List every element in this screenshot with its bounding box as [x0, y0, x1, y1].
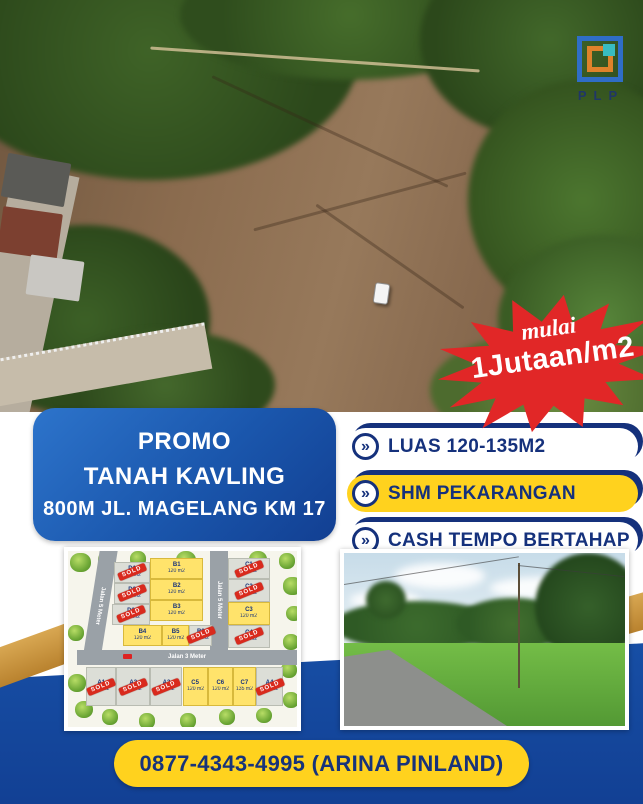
- red-roof-building: [0, 206, 63, 260]
- plot-code: C7: [234, 680, 255, 686]
- plot-code: C3: [229, 607, 268, 613]
- plot-code: B4: [124, 629, 161, 635]
- white-roof-building: [25, 254, 84, 301]
- tree-icon: [219, 709, 235, 725]
- plot-area: 120 m2: [165, 635, 187, 641]
- siteplan: Jalan 5 MeterJalan 5 MeterJalan 3 MeterB…: [68, 551, 297, 727]
- plot-code: B3: [151, 604, 202, 610]
- plot-area: 135 m2: [235, 687, 253, 693]
- plot: D1120 m2SOLD: [114, 562, 151, 583]
- palm-tree: [366, 581, 405, 619]
- plot: B5120 m2: [162, 625, 189, 646]
- contact-label: 0877-4343-4995 (ARINA PINLAND): [140, 751, 504, 776]
- promo-title: PROMO: [33, 428, 336, 456]
- tree-icon: [283, 634, 297, 650]
- plot: C6120 m2: [208, 667, 233, 706]
- tree-icon: [70, 553, 91, 572]
- plot: A2120 m2SOLD: [116, 667, 150, 706]
- tree-icon: [68, 625, 84, 641]
- tree-icon: [139, 713, 155, 727]
- dirt-track: [253, 172, 466, 232]
- flyer: PLP mulai 1Jutaan/m2 PROMO TANAH KAVLING…: [0, 0, 643, 804]
- promo-card: PROMO TANAH KAVLING 800M JL. MAGELANG KM…: [33, 408, 336, 541]
- developer-logo-icon: [577, 36, 623, 82]
- road-label: Jalan 5 Meter: [94, 587, 106, 625]
- contact-pill: 0877-4343-4995 (ARINA PINLAND): [114, 740, 530, 787]
- tree-icon: [68, 674, 86, 692]
- tree-icon: [256, 708, 272, 724]
- plot: C1120 m2SOLD: [228, 558, 269, 579]
- plot-area: 120 m2: [185, 687, 205, 693]
- white-van: [373, 282, 391, 305]
- feature-label: SHM PEKARANGAN: [388, 483, 576, 505]
- road-label: Jalan 5 Meter: [216, 581, 222, 619]
- plot-area: 120 m2: [210, 687, 230, 693]
- plot-code: B2: [151, 583, 202, 589]
- tree-icon: [180, 713, 196, 727]
- feature-pill: »SHM PEKARANGAN: [347, 475, 638, 512]
- feature-list: »LUAS 120-135M2»SHM PEKARANGAN»CASH TEMP…: [347, 428, 638, 569]
- plot: B1120 m2: [150, 558, 203, 579]
- tree-icon: [102, 709, 118, 725]
- plot: C5120 m2: [183, 667, 208, 706]
- plot: B3120 m2: [150, 600, 203, 621]
- plot: B4120 m2: [123, 625, 162, 646]
- plot-area: 120 m2: [127, 635, 158, 641]
- logo-core-square: [603, 44, 615, 56]
- chevron-icon: »: [352, 433, 379, 460]
- plot-area: 120 m2: [155, 611, 198, 617]
- plot: B6120 m2SOLD: [189, 625, 212, 646]
- plot-area: 120 m2: [232, 613, 265, 619]
- dirt-track: [315, 204, 464, 310]
- road-label: Jalan 3 Meter: [168, 654, 206, 660]
- tree-icon: [286, 606, 297, 622]
- plot: A4120 m2SOLD: [256, 667, 283, 706]
- plot: C7135 m2: [233, 667, 256, 706]
- plot-code: B1: [151, 562, 202, 568]
- promo-location: 800M JL. MAGELANG KM 17: [33, 498, 336, 521]
- tree-icon: [279, 553, 295, 569]
- promo-subtitle: TANAH KAVLING: [33, 463, 336, 491]
- siteplan-card: Jalan 5 MeterJalan 5 MeterJalan 3 MeterB…: [64, 547, 301, 731]
- plot: C2120 m2SOLD: [228, 579, 269, 602]
- road: Jalan 3 Meter: [77, 650, 297, 666]
- chevron-icon: »: [352, 480, 379, 507]
- road: Jalan 5 Meter: [210, 551, 228, 650]
- developer-logo-text: PLP: [558, 88, 643, 103]
- tree-icon: [283, 577, 297, 595]
- plot: D3120 m2SOLD: [112, 604, 151, 625]
- tree-icon: [283, 692, 297, 708]
- land-photo: [344, 553, 625, 726]
- plot: D2120 m2SOLD: [114, 583, 151, 604]
- plot: A1120 m2SOLD: [86, 667, 116, 706]
- plot-code: C6: [209, 680, 232, 686]
- plot-code: C5: [184, 680, 207, 686]
- cloud: [395, 563, 485, 589]
- plot-area: 120 m2: [155, 569, 198, 575]
- plot: B2120 m2: [150, 579, 203, 600]
- plot-area: 120 m2: [155, 590, 198, 596]
- utility-pole: [518, 563, 520, 688]
- plot: A3120 m2SOLD: [150, 667, 182, 706]
- plot: C4120 m2SOLD: [228, 625, 269, 648]
- plot: C3120 m2: [228, 602, 269, 625]
- land-photo-card: [340, 549, 629, 730]
- car-icon: [123, 654, 132, 659]
- plot-code: B5: [163, 629, 188, 635]
